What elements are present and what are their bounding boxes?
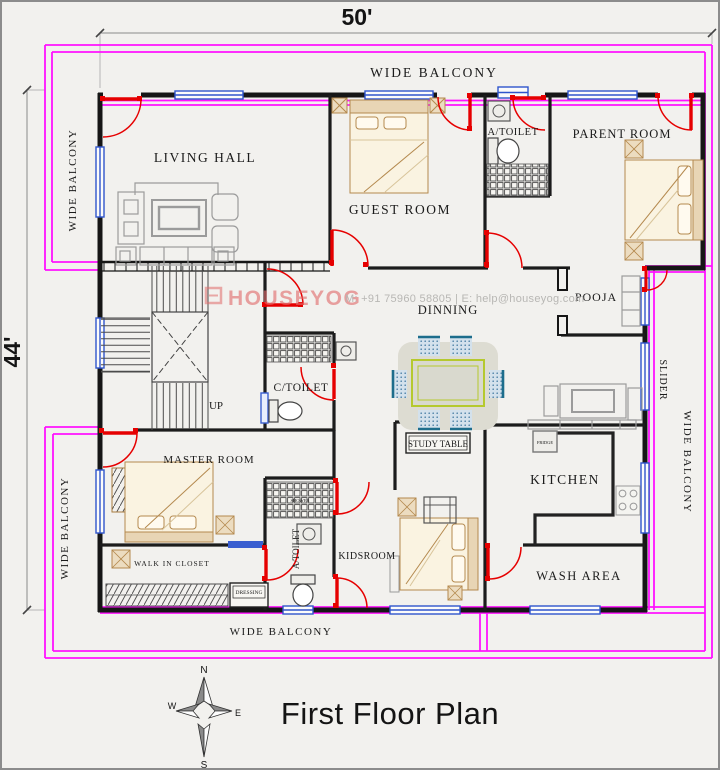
dining-set bbox=[392, 336, 504, 430]
living-hall-partition-wall bbox=[100, 262, 330, 271]
label-parent-room: PARENT ROOM bbox=[573, 127, 672, 141]
dimension-height-label: 44' bbox=[0, 336, 25, 367]
label-study-table: STUDY TABLE bbox=[408, 439, 469, 449]
label-slider: SLIDER bbox=[657, 360, 668, 401]
label-master-room: MASTER ROOM bbox=[163, 454, 254, 466]
label-kitchen: KITCHEN bbox=[530, 472, 600, 487]
compass-west: W bbox=[168, 701, 177, 711]
label-wide-balcony-left-upper: WIDE BALCONY bbox=[67, 129, 79, 232]
watermark-contact: M: +91 75960 58805 | E: help@houseyog.co… bbox=[345, 293, 584, 305]
label-fridge: FRIDGE bbox=[537, 440, 554, 445]
floor-plan-page: 50' 44' bbox=[0, 0, 720, 770]
label-kidsroom: KIDSROOM bbox=[338, 551, 395, 562]
pooja-pillar bbox=[558, 268, 567, 290]
window-right-kitchen bbox=[641, 463, 649, 533]
window-bottom-wash bbox=[530, 606, 600, 614]
plan-title: First Floor Plan bbox=[281, 696, 499, 731]
label-living-hall: LIVING HALL bbox=[154, 150, 256, 165]
dimension-width-label: 50' bbox=[341, 4, 372, 30]
label-guest-room: GUEST ROOM bbox=[349, 202, 451, 217]
label-wide-balcony-top: WIDE BALCONY bbox=[370, 65, 498, 80]
label-wash-area: WASH AREA bbox=[536, 569, 621, 583]
label-wide-balcony-bottom: WIDE BALCONY bbox=[230, 626, 333, 638]
label-shower: SHOWER bbox=[291, 498, 310, 503]
window-top-parent bbox=[568, 91, 637, 99]
label-walk-in-closet: WALK IN CLOSET bbox=[134, 559, 210, 568]
window-left-master bbox=[96, 470, 104, 533]
label-dinning: DINNING bbox=[418, 303, 478, 317]
window-top-living bbox=[175, 91, 243, 99]
pooja-pillar bbox=[558, 316, 567, 335]
label-a-toilet-top: A/TOILET bbox=[487, 127, 538, 138]
window-bottom-toilet bbox=[283, 606, 313, 614]
label-dressing: DRESSING bbox=[236, 590, 263, 596]
stove bbox=[616, 486, 640, 515]
label-up: UP bbox=[209, 400, 223, 412]
label-wide-balcony-left-lower: WIDE BALCONY bbox=[59, 477, 71, 580]
window-top-guest bbox=[365, 91, 433, 99]
floor-plan-canvas: 50' 44' bbox=[0, 0, 720, 770]
label-c-toilet: C/TOILET bbox=[274, 382, 329, 394]
door-frame-blue bbox=[261, 393, 268, 423]
label-a-toilet-bottom: A/TOILET bbox=[291, 528, 301, 569]
door-frame-blue bbox=[228, 541, 263, 548]
compass-east: E bbox=[235, 708, 241, 718]
label-wide-balcony-right: WIDE BALCONY bbox=[681, 411, 693, 514]
compass-north: N bbox=[200, 665, 207, 676]
window-bottom-kids bbox=[390, 606, 460, 614]
window-left-living bbox=[96, 147, 104, 217]
watermark-brand: HOUSEYOG bbox=[228, 287, 361, 310]
compass-south: S bbox=[201, 760, 208, 770]
